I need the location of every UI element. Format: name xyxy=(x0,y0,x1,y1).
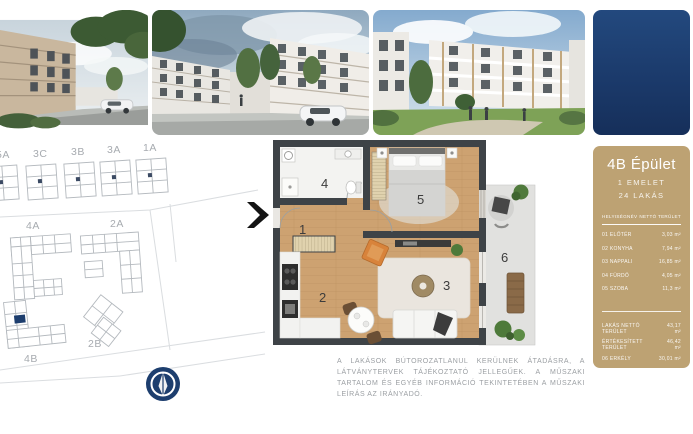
siteplan-building-2a xyxy=(80,232,142,296)
total-row: 06 ERKÉLY 30,01 m² xyxy=(602,356,681,362)
room-name: 04 FÜRDŐ xyxy=(602,273,629,279)
dining-table xyxy=(348,307,374,333)
building-title: 4B Épület xyxy=(602,157,681,174)
highlighted-apartment-unit[interactable] xyxy=(14,314,26,323)
siteplan-label-3b: 3B xyxy=(71,146,85,158)
total-name: ÉRTÉKESÍTETT TERÜLET xyxy=(602,339,661,351)
room-number-bedroom: 5 xyxy=(417,192,424,207)
render-photo-1-scene xyxy=(0,10,148,135)
brochure-page: 5A 3C 3B 3A 1A 4A 2A 2B 4B xyxy=(0,0,693,434)
compass-icon xyxy=(146,367,180,401)
siteplan-label-4b: 4B xyxy=(24,353,38,365)
siteplan-label-2b: 2B xyxy=(88,338,102,350)
render-photo-street-wide xyxy=(152,10,369,135)
room-area-table: HELYISÉGNÉV NETTÓ TERÜLET 01 ELŐTÉR 3,03… xyxy=(602,214,681,362)
render-photo-courtyard xyxy=(373,10,585,135)
table-row: 01 ELŐTÉR 3,03 m² xyxy=(602,232,681,238)
total-name: LAKÁS NETTÓ TERÜLET xyxy=(602,323,661,335)
totals-block: LAKÁS NETTÓ TERÜLET 43,17 m² ÉRTÉKESÍTET… xyxy=(602,311,681,362)
brand-panel xyxy=(593,10,690,135)
room-area: 11,3 m² xyxy=(662,286,681,292)
kitchen-lower-cabinet xyxy=(300,318,340,338)
room-name: 05 SZOBA xyxy=(602,286,628,292)
render-photo-3-scene xyxy=(373,10,585,135)
header-net-area: NETTÓ TERÜLET xyxy=(639,214,681,219)
room-number-living: 3 xyxy=(443,278,450,293)
room-name: 01 ELŐTÉR xyxy=(602,232,632,238)
siteplan-label-3c: 3C xyxy=(33,148,47,160)
siteplan-label-1a: 1A xyxy=(143,142,157,154)
siteplan-buildings-top-row xyxy=(0,158,168,201)
siteplan-building-4a xyxy=(10,234,74,300)
siteplan-label-3a: 3A xyxy=(107,144,121,156)
table-row: 02 KONYHA 7,94 m² xyxy=(602,246,681,252)
siteplan-label-2a: 2A xyxy=(110,218,124,230)
site-plan: 5A 3C 3B 3A 1A 4A 2A 2B 4B xyxy=(0,140,270,412)
toilet xyxy=(346,181,361,194)
table-row: 04 FÜRDŐ 4,05 m² xyxy=(602,273,681,279)
total-row: ÉRTÉKESÍTETT TERÜLET 46,42 m² xyxy=(602,339,681,351)
total-area: 46,42 m² xyxy=(661,339,681,351)
room-number-kitchen: 2 xyxy=(319,290,326,305)
room-name: 02 KONYHA xyxy=(602,246,633,252)
cooktop xyxy=(282,264,298,290)
siteplan-building-2b xyxy=(79,295,131,347)
total-row: LAKÁS NETTÓ TERÜLET 43,17 m² xyxy=(602,323,681,335)
render-photo-2-scene xyxy=(152,10,369,135)
washing-machine xyxy=(282,149,295,162)
floor-label: 1 EMELET xyxy=(602,178,681,187)
table-row: 03 NAPPALI 16,85 m² xyxy=(602,259,681,265)
floor-plan: 1 2 3 4 5 6 xyxy=(273,140,540,350)
room-area: 3,03 m² xyxy=(662,232,681,238)
table-row: 05 SZOBA 11,3 m² xyxy=(602,286,681,292)
terrace-lounge-chair xyxy=(507,273,524,313)
siteplan-building-4b xyxy=(4,297,66,349)
room-area: 7,94 m² xyxy=(662,246,681,252)
render-photo-street-left xyxy=(0,10,148,135)
hall-wardrobe xyxy=(293,236,335,252)
plant xyxy=(451,244,463,256)
disclaimer-text: A lakások bútorozatlanul kerülnek átadás… xyxy=(337,357,585,400)
siteplan-label-5a: 5A xyxy=(0,149,10,161)
apartment-count-label: 24 LAKÁS xyxy=(602,191,681,200)
room-number-hall: 1 xyxy=(299,222,306,237)
room-area: 16,85 m² xyxy=(659,259,681,265)
siteplan-label-4a: 4A xyxy=(26,220,40,232)
header-room-name: HELYISÉGNÉV xyxy=(602,214,637,219)
room-area: 4,05 m² xyxy=(662,273,681,279)
chevron-right-icon xyxy=(247,202,269,228)
table-header: HELYISÉGNÉV NETTÓ TERÜLET xyxy=(602,214,681,225)
total-name: 06 ERKÉLY xyxy=(602,356,631,362)
bedroom-wardrobe xyxy=(372,152,386,200)
total-area: 30,01 m² xyxy=(659,356,681,362)
apartment-info-panel: 4B Épület 1 EMELET 24 LAKÁS HELYISÉGNÉV … xyxy=(593,146,690,368)
room-number-bathroom: 4 xyxy=(321,176,328,191)
room-name: 03 NAPPALI xyxy=(602,259,633,265)
total-area: 43,17 m² xyxy=(661,323,681,335)
sofa xyxy=(393,310,457,338)
room-number-terrace: 6 xyxy=(501,250,508,265)
